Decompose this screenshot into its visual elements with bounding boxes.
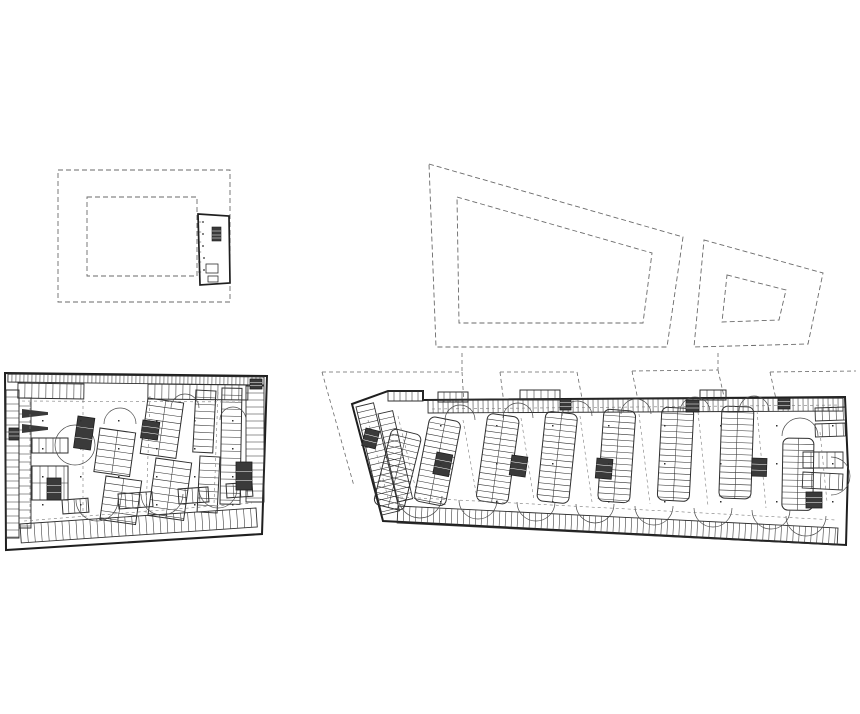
column-dot: [202, 245, 204, 247]
site-outline-upper-right: [429, 164, 823, 347]
core-block: [236, 462, 252, 490]
site-outline-upper-left: [58, 170, 230, 302]
column-dot: [202, 233, 204, 235]
core-fill: [806, 492, 822, 508]
column-dot: [203, 257, 205, 259]
core-fill: [595, 458, 613, 479]
core-block: [595, 458, 613, 479]
footprint-projection-dashed: [770, 371, 856, 372]
core-fill: [236, 462, 252, 490]
core-fill: [9, 428, 19, 440]
core-block: [778, 398, 790, 409]
core-block: [47, 478, 61, 500]
core-fill: [509, 455, 528, 477]
stair-core-building-outline: [198, 214, 230, 285]
site-boundary-small-inner: [722, 275, 786, 322]
plan-drawing-svg: [0, 0, 860, 714]
core-block: [686, 400, 699, 412]
parking-plan-right: [322, 353, 856, 545]
core-fill: [47, 478, 61, 500]
core-block: [751, 458, 767, 477]
core-fill: [140, 420, 159, 440]
core-fill: [751, 458, 767, 477]
core-fill: [686, 400, 699, 412]
core-fill: [250, 379, 262, 389]
footprint-projection-dashed: [322, 372, 354, 486]
footprint-projection-dashed: [632, 370, 718, 371]
core-block: [560, 399, 571, 410]
site-boundary-large-inner: [457, 197, 652, 323]
column-dot: [202, 221, 204, 223]
architectural-drawing-sheet: [0, 0, 860, 714]
site-boundary-large-outer: [429, 164, 683, 347]
core-block: [509, 455, 528, 477]
core-block: [806, 492, 822, 508]
core-fill: [560, 399, 571, 410]
core-block: [9, 428, 19, 440]
parking-plan-left: [5, 373, 267, 550]
core-fill: [778, 398, 790, 409]
stair-block: [212, 227, 221, 241]
stall-ticks: [6, 397, 19, 537]
column-dot: [203, 269, 205, 271]
core-block: [140, 420, 159, 440]
core-block: [250, 379, 262, 389]
site-boundary-inner-dashed: [87, 197, 197, 276]
site-boundary-small-outer: [694, 240, 823, 347]
